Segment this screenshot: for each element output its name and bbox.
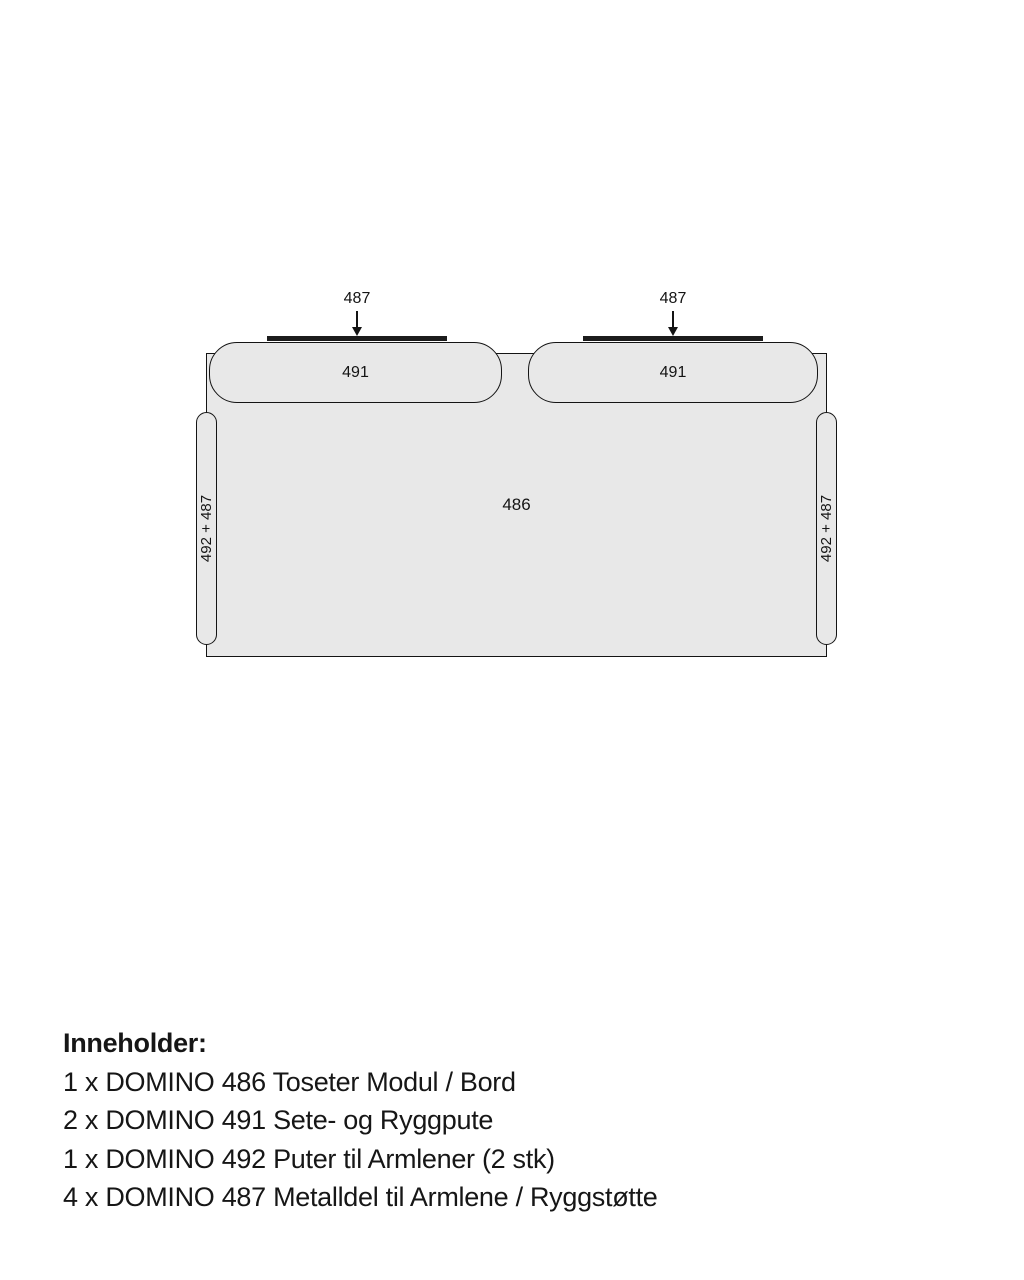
arrow-head [352, 327, 362, 336]
metal-bar-487-left [267, 336, 447, 341]
arrow-shaft [356, 311, 358, 328]
contents-list: Inneholder: 1 x DOMINO 486 Toseter Modul… [63, 1024, 963, 1217]
arrow-head [668, 327, 678, 336]
arrow-shaft [672, 311, 674, 328]
sofa-top-view-diagram: 492 + 487 492 + 487 491 491 486 487 487 [0, 0, 1024, 900]
contents-item-492: 1 x DOMINO 492 Puter til Armlener (2 stk… [63, 1140, 963, 1179]
metal-left-callout-label: 487 [317, 290, 397, 308]
page: 492 + 487 492 + 487 491 491 486 487 487 [0, 0, 1024, 1280]
contents-item-487: 4 x DOMINO 487 Metalldel til Armlene / R… [63, 1178, 963, 1217]
arrow-down-icon-right [664, 311, 682, 336]
contents-heading: Inneholder: [63, 1024, 963, 1063]
metal-bar-487-right [583, 336, 763, 341]
arrow-down-icon-left [348, 311, 366, 336]
metal-right-callout-label: 487 [633, 290, 713, 308]
contents-item-491: 2 x DOMINO 491 Sete- og Ryggpute [63, 1101, 963, 1140]
contents-item-486: 1 x DOMINO 486 Toseter Modul / Bord [63, 1063, 963, 1102]
base-label: 486 [206, 353, 827, 657]
